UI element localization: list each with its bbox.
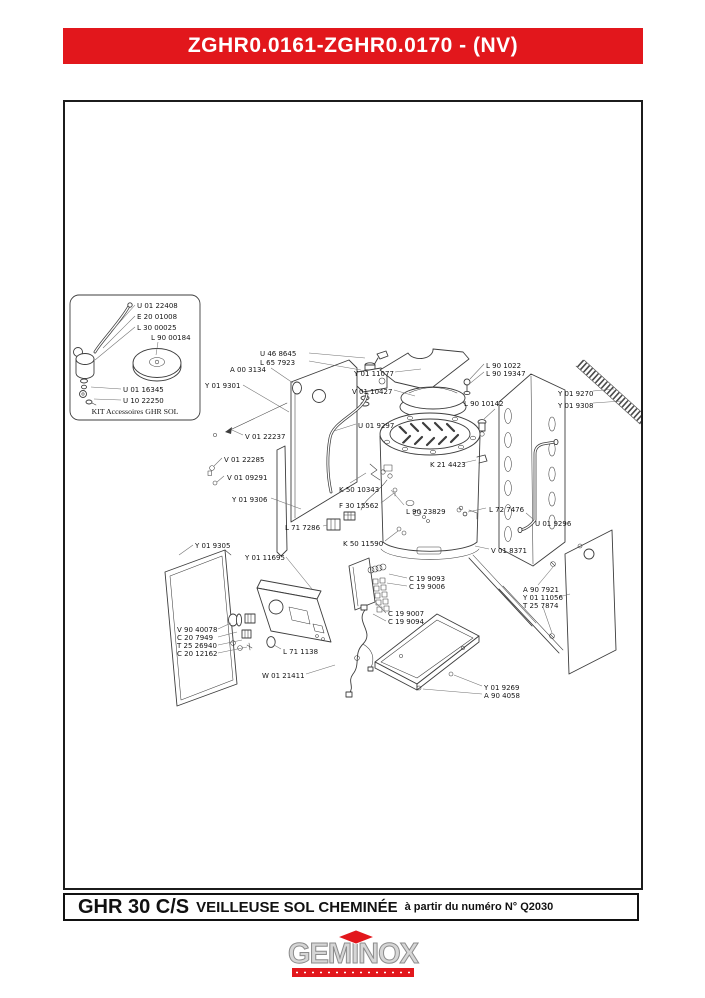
part-label: C 19 9093 [409, 575, 445, 583]
part-label: Y 01 9301 [204, 382, 240, 390]
part-label: V 01 8371 [491, 547, 527, 555]
part-label: T 25 7874 [522, 602, 559, 610]
part-label: Y 01 9305 [194, 542, 230, 550]
part-label: C 20 7949 [177, 634, 213, 642]
part-label: V 01 22285 [224, 456, 264, 464]
footer-title-bar: GHR 30 C/S VEILLEUSE SOL CHEMINÉE à part… [63, 893, 639, 921]
exploded-view-diagram: U 01 22408 E 20 01008 L 30 00025 L 90 00… [65, 102, 641, 888]
part-label: K 50 10343 [339, 486, 379, 494]
serial-note: à partir du numéro N° Q2030 [405, 901, 554, 913]
part-label: Y 01 9306 [231, 496, 268, 504]
inset-caption: KIT Accessoires GHR SOL [92, 407, 179, 416]
part-label: V 01 09291 [227, 474, 267, 482]
part-label: C 19 9006 [409, 583, 446, 591]
part-label: Y 01 9308 [557, 402, 593, 410]
part-label: Y 01 9270 [557, 390, 593, 398]
part-label: W 01 21411 [262, 672, 305, 680]
geminox-logo: GEMINOX [278, 928, 428, 987]
part-label: L 90 23829 [406, 508, 446, 516]
part-label: L 90 00184 [151, 334, 191, 342]
part-label: T 25 26940 [176, 642, 217, 650]
part-label: L 72 7476 [489, 506, 525, 514]
part-label: A 90 4058 [484, 692, 520, 700]
part-label: V 01 22237 [245, 433, 285, 441]
part-label: Y 01 11077 [353, 370, 394, 378]
terminal-block [373, 578, 389, 612]
part-label: L 90 19347 [486, 370, 526, 378]
part-label: U 46 8645 [260, 350, 296, 358]
part-label: U 01 9297 [358, 422, 394, 430]
model-description: VEILLEUSE SOL CHEMINÉE [196, 899, 397, 916]
part-label: A 00 3134 [230, 366, 267, 374]
part-label: F 30 15562 [339, 502, 379, 510]
part-label: L 90 10142 [464, 400, 504, 408]
page-title: ZGHR0.0161-ZGHR0.0170 - (NV) [188, 34, 518, 58]
header-banner: ZGHR0.0161-ZGHR0.0170 - (NV) [63, 28, 643, 64]
part-label: K 21 4423 [430, 461, 466, 469]
part-label: U 01 22408 [137, 302, 178, 310]
part-label: U 10 22250 [123, 397, 164, 405]
part-label: C 19 9094 [388, 618, 425, 626]
part-label: L 30 00025 [137, 324, 177, 332]
part-label: Y 01 9269 [483, 684, 519, 692]
part-label: L 90 1022 [486, 362, 521, 370]
diagram-frame: U 01 22408 E 20 01008 L 30 00025 L 90 00… [63, 100, 643, 890]
part-label: Y 01 11056 [522, 594, 563, 602]
part-label: U 01 9296 [535, 520, 572, 528]
part-label: V 01 10427 [352, 388, 392, 396]
part-label: K 50 11590 [343, 540, 383, 548]
part-label: L 71 1138 [283, 648, 318, 656]
part-label: A 90 7921 [523, 586, 559, 594]
part-label: C 19 9007 [388, 610, 424, 618]
inset-kit-box: U 01 22408 E 20 01008 L 30 00025 L 90 00… [70, 295, 200, 420]
part-label: U 01 16345 [123, 386, 164, 394]
part-label: E 20 01008 [137, 313, 177, 321]
part-label: C 20 12162 [177, 650, 218, 658]
part-label: V 90 40078 [177, 626, 217, 634]
model-name: GHR 30 C/S [78, 896, 189, 919]
part-label: Y 01 11695 [244, 554, 285, 562]
part-label: L 71 7286 [285, 524, 321, 532]
